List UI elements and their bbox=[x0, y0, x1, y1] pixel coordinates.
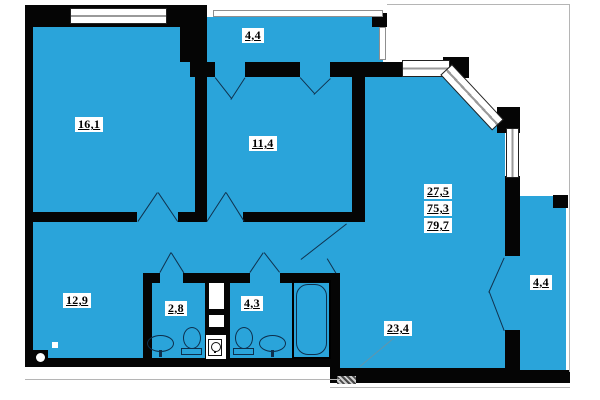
sink-pedestal bbox=[159, 350, 162, 357]
toilet-tank bbox=[181, 348, 202, 355]
label-bedroom-1-area: 16,1 bbox=[75, 117, 103, 132]
wall-balcony-bottom bbox=[520, 370, 570, 383]
room-balcony-top bbox=[205, 17, 383, 62]
window-bedroom-1 bbox=[70, 8, 167, 24]
wall-san-top-a bbox=[143, 273, 160, 283]
toilet-bowl bbox=[235, 327, 253, 349]
toilet-bowl bbox=[183, 327, 201, 349]
shaft-opening-1 bbox=[209, 283, 224, 309]
toilet-icon-bathroom bbox=[233, 327, 255, 357]
wall-bedroom-divider bbox=[195, 5, 207, 222]
boundary-line-bottom-right bbox=[330, 387, 570, 388]
label-summary-living: 27,5 bbox=[424, 184, 452, 199]
wall-hallway-b bbox=[178, 212, 207, 222]
boundary-line-bottom-left bbox=[25, 379, 340, 380]
label-summary-total: 75,3 bbox=[424, 201, 452, 216]
bathtub-inner bbox=[296, 284, 327, 355]
door-gap-bathroom bbox=[250, 273, 280, 283]
boiler-icon bbox=[208, 339, 222, 356]
room-hallway-strip bbox=[143, 222, 340, 275]
boundary-line-right bbox=[569, 4, 570, 372]
door-gap-balcony-top-b bbox=[300, 62, 330, 77]
label-hallway-area: 12,9 bbox=[63, 293, 91, 308]
boiler-dot bbox=[214, 351, 216, 353]
wall-notch bbox=[52, 342, 58, 348]
door-gap-balcony-top-a bbox=[215, 62, 245, 77]
window-living-right bbox=[506, 128, 519, 178]
label-balcony-right-area: 4,4 bbox=[530, 275, 552, 290]
wall-hallway-c bbox=[243, 212, 365, 222]
wall-bedroom2-living bbox=[352, 62, 365, 222]
sink-icon-bathroom bbox=[259, 333, 287, 357]
sink-icon-wc bbox=[147, 333, 175, 357]
label-summary-total-with-balconies: 79,7 bbox=[424, 218, 452, 233]
wall-bottom-left bbox=[25, 358, 340, 367]
entry-hatch bbox=[337, 376, 356, 384]
room-living-lower bbox=[340, 222, 505, 368]
room-bedroom-1 bbox=[33, 27, 195, 212]
bathtub-icon bbox=[292, 280, 331, 359]
wall-hallway-a bbox=[33, 212, 137, 222]
shaft-opening-2 bbox=[209, 315, 224, 327]
column-hole bbox=[36, 353, 45, 362]
wall-right-upper bbox=[505, 176, 520, 256]
balcony-door-opening bbox=[505, 256, 520, 330]
window-balcony-top bbox=[213, 10, 383, 17]
wall-bottom-right bbox=[330, 368, 520, 383]
label-bedroom-2-area: 11,4 bbox=[249, 136, 277, 151]
label-bathroom-area: 4,3 bbox=[241, 296, 263, 311]
floor-plan: 16,1 4,4 11,4 12,9 2,8 4,3 23,4 4,4 27,5… bbox=[0, 0, 600, 400]
boundary-line-top bbox=[387, 4, 570, 5]
column-icon bbox=[33, 350, 48, 365]
room-hallway bbox=[33, 222, 143, 358]
wall-left bbox=[25, 5, 33, 367]
label-balcony-top-area: 4,4 bbox=[242, 28, 264, 43]
label-wc-area: 2,8 bbox=[165, 301, 187, 316]
pillar-balcony-right bbox=[553, 195, 568, 208]
window-balcony-top-side bbox=[379, 27, 386, 60]
label-living-room-area: 23,4 bbox=[384, 321, 412, 336]
toilet-tank bbox=[233, 348, 254, 355]
toilet-icon-wc bbox=[181, 327, 203, 357]
sink-pedestal bbox=[271, 350, 274, 357]
boiler-drum bbox=[211, 342, 221, 352]
door-gap-wc bbox=[160, 273, 183, 283]
wall-right-lower bbox=[505, 330, 520, 372]
